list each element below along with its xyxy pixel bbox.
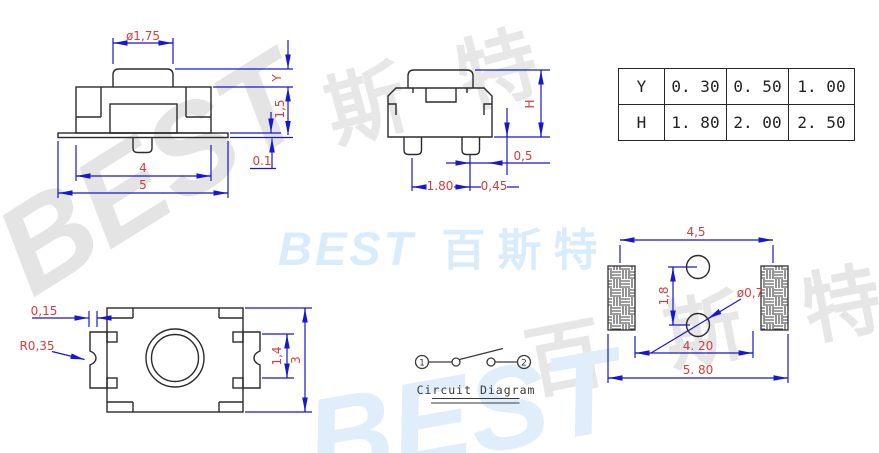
dim-height-h: H bbox=[523, 99, 537, 108]
dim-hole-diameter: ø0,7 bbox=[737, 286, 763, 300]
side-leg-right bbox=[462, 137, 480, 155]
dim-travel-y: Y bbox=[270, 74, 284, 83]
dim-body-depth: 3 bbox=[289, 356, 303, 364]
footprint-view: 4,5 1,8 ø0,7 4. 20 5. 80 bbox=[608, 225, 788, 383]
dim-notch-radius: R0,35 bbox=[19, 339, 54, 353]
top-terminal-right bbox=[243, 332, 260, 388]
footprint-pad-right bbox=[761, 266, 788, 330]
table-cell: 0. 30 bbox=[665, 69, 727, 105]
top-terminal-left bbox=[90, 332, 107, 388]
front-pin bbox=[133, 138, 152, 153]
dim-pad-center-span: 4,5 bbox=[686, 225, 705, 239]
top-button-inner bbox=[152, 335, 199, 382]
side-cap bbox=[408, 70, 473, 88]
dim-flange-thickness: 0.1 bbox=[252, 154, 271, 168]
table-cell: 1. 80 bbox=[665, 105, 727, 141]
circuit-caption: Circuit Diagram bbox=[417, 383, 536, 397]
parameter-table: Y 0. 30 0. 50 1. 00 H 1. 80 2. 00 2. 50 bbox=[618, 68, 855, 141]
dim-hole-pitch: 1,8 bbox=[657, 286, 671, 305]
side-view: H 0,5 1.80 0,45 bbox=[388, 70, 550, 193]
dim-base-width: 5 bbox=[139, 178, 147, 192]
table-cell: 2. 00 bbox=[727, 105, 789, 141]
front-cap bbox=[113, 69, 173, 87]
footprint-pad-left bbox=[608, 266, 635, 330]
table-row-label: Y bbox=[619, 69, 665, 105]
dim-terminal-height: 1,4 bbox=[270, 346, 284, 365]
front-flange bbox=[58, 133, 228, 138]
top-body bbox=[107, 308, 243, 412]
side-body bbox=[388, 88, 492, 137]
dim-leg-pitch: 1.80 bbox=[427, 179, 454, 193]
top-view: 0,15 R0,35 1,4 3 bbox=[19, 304, 312, 412]
dim-cap-diameter: ø1,75 bbox=[126, 29, 160, 43]
front-body bbox=[76, 87, 211, 133]
dim-leg-width: 0,5 bbox=[513, 149, 532, 163]
dim-pad-inner-span: 4. 20 bbox=[683, 339, 714, 353]
front-view: ø1,75 Y 1,5 0.1 4 5 bbox=[58, 29, 293, 198]
dim-terminal-thickness: 0,15 bbox=[31, 304, 58, 318]
table-row-label: H bbox=[619, 105, 665, 141]
circuit-diagram: 1 2 Circuit Diagram bbox=[416, 349, 536, 404]
dim-body-height: 1,5 bbox=[273, 99, 287, 118]
table-cell: 0. 50 bbox=[727, 69, 789, 105]
dim-pad-outer-span: 5. 80 bbox=[683, 363, 714, 377]
table-cell: 1. 00 bbox=[789, 69, 854, 105]
side-leg-left bbox=[404, 137, 422, 155]
dim-body-width: 4 bbox=[139, 161, 147, 175]
table-cell: 2. 50 bbox=[789, 105, 854, 141]
dim-leg-offset: 0,45 bbox=[481, 179, 508, 193]
circuit-pin1-label: 1 bbox=[419, 359, 425, 369]
top-button-outer bbox=[146, 329, 204, 387]
circuit-pin2-label: 2 bbox=[521, 359, 527, 369]
drawing-canvas: BEST 斯 特 百 斯 特 BEST BEST百斯特 bbox=[0, 0, 879, 453]
